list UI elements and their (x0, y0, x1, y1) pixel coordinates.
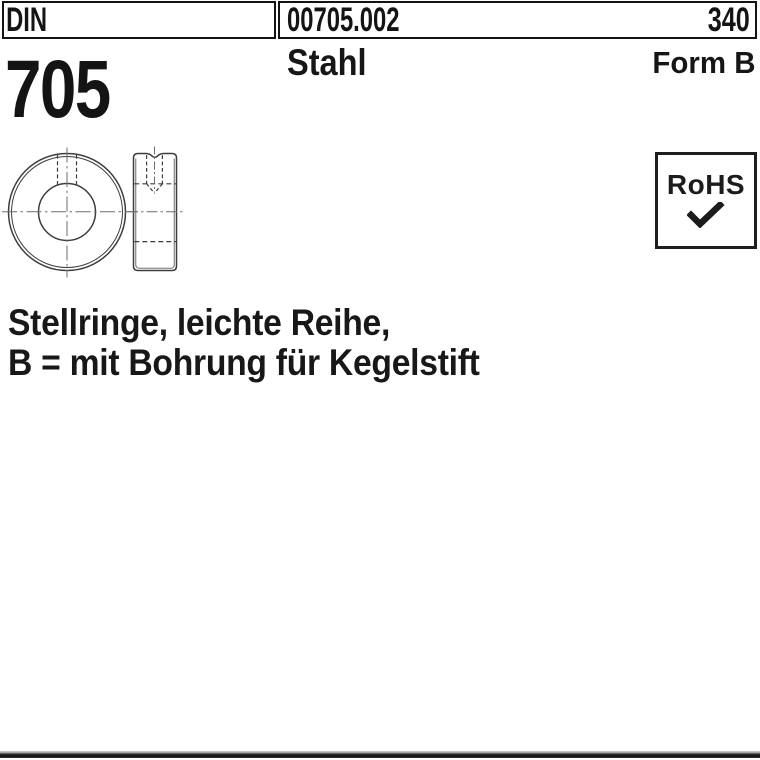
standard-number: 705 (5, 49, 110, 131)
description-line-2: B = mit Bohrung für Kegelstift (8, 343, 480, 383)
page-number: 340 (708, 3, 750, 37)
catalog-page: DIN 00705.002 340 705 Stahl Form B (0, 0, 760, 760)
product-description: Stellringe, leichte Reihe, B = mit Bohru… (8, 303, 480, 383)
bottom-separator-bar (0, 751, 760, 758)
din-label: DIN (4, 3, 47, 37)
rohs-badge: RoHS (655, 152, 757, 249)
header-din-box: DIN (2, 1, 276, 39)
article-number: 00705.002 (287, 3, 400, 37)
header-number-box: 00705.002 340 (278, 1, 757, 39)
side-outline-inner-line (136, 159, 174, 269)
material-label: Stahl (287, 44, 367, 81)
drill-tip-hidden-line (155, 184, 163, 193)
centerlines (2, 147, 184, 278)
description-line-1: Stellringe, leichte Reihe, (8, 303, 480, 343)
checkmark-icon (687, 202, 725, 228)
rohs-label: RoHS (658, 171, 754, 199)
form-label: Form B (652, 47, 755, 78)
technical-drawing (0, 138, 200, 288)
drill-tip-hidden-line (147, 184, 155, 193)
